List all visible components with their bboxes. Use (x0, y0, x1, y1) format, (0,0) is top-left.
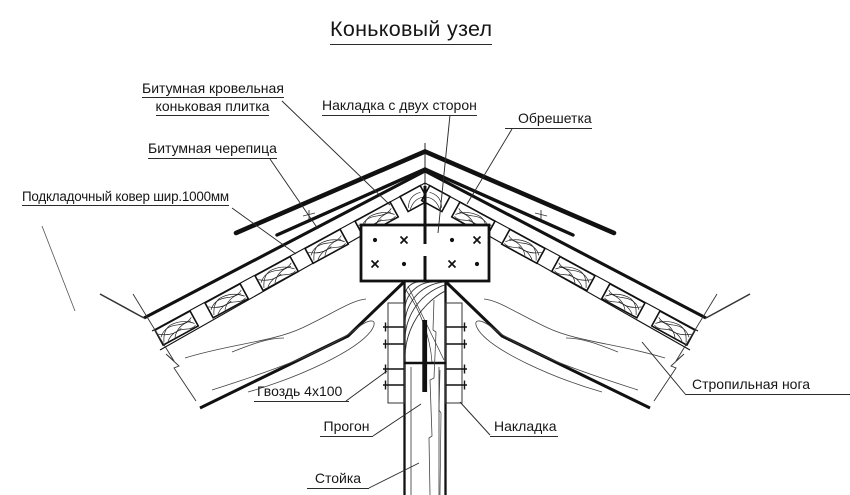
drawing-linework (0, 0, 850, 495)
label-ridge-tile: Битумная кровельная коньковая плитка (142, 80, 283, 116)
page-title: Коньковый узел (330, 17, 492, 45)
label-overlay-both-sides: Накладка с двух сторон (322, 98, 477, 116)
leader-purlin (373, 404, 421, 436)
break-line-left (42, 226, 75, 311)
label-ridge-tile-line2: коньковая плитка (156, 98, 270, 116)
label-rafter: Стропильная нога (686, 377, 850, 395)
label-post: Стойка (307, 471, 369, 489)
leader-shingles (270, 159, 318, 229)
label-nail: Гвоздь 4x100 (254, 384, 349, 402)
label-shingles: Битумная черепица (148, 141, 277, 159)
leader-nail (346, 371, 387, 401)
label-underlayment: Подкладочный ковер шир.1000мм (22, 189, 229, 206)
label-sheathing: Обрешетка (505, 111, 592, 129)
leader-sheathing (467, 129, 512, 204)
ridge-node-drawing: Коньковый узел Битумная кровельная коньк… (0, 0, 850, 495)
leader-rafter (642, 342, 686, 395)
leader-overlay (460, 402, 490, 435)
leader-post (369, 463, 419, 488)
bolt-bar (422, 320, 427, 392)
label-purlin: Прогон (320, 419, 373, 437)
label-ridge-tile-line1: Битумная кровельная (142, 80, 284, 98)
label-overlay: Накладка (490, 419, 558, 437)
purlin-section (405, 282, 481, 362)
